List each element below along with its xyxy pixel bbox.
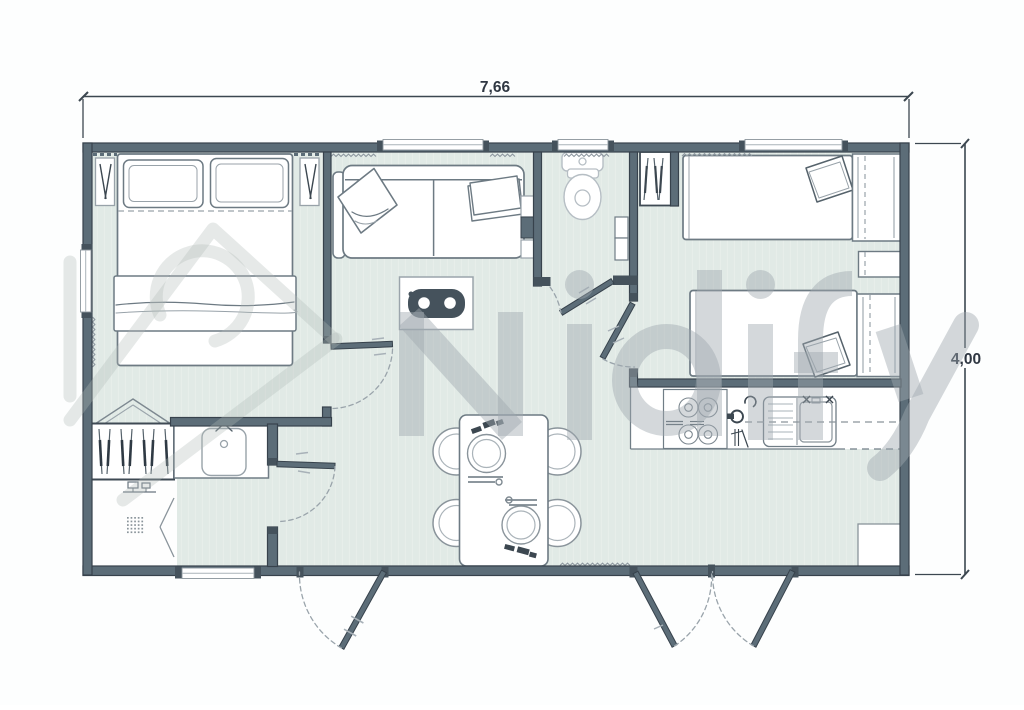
svg-text:7,66: 7,66: [480, 79, 511, 96]
